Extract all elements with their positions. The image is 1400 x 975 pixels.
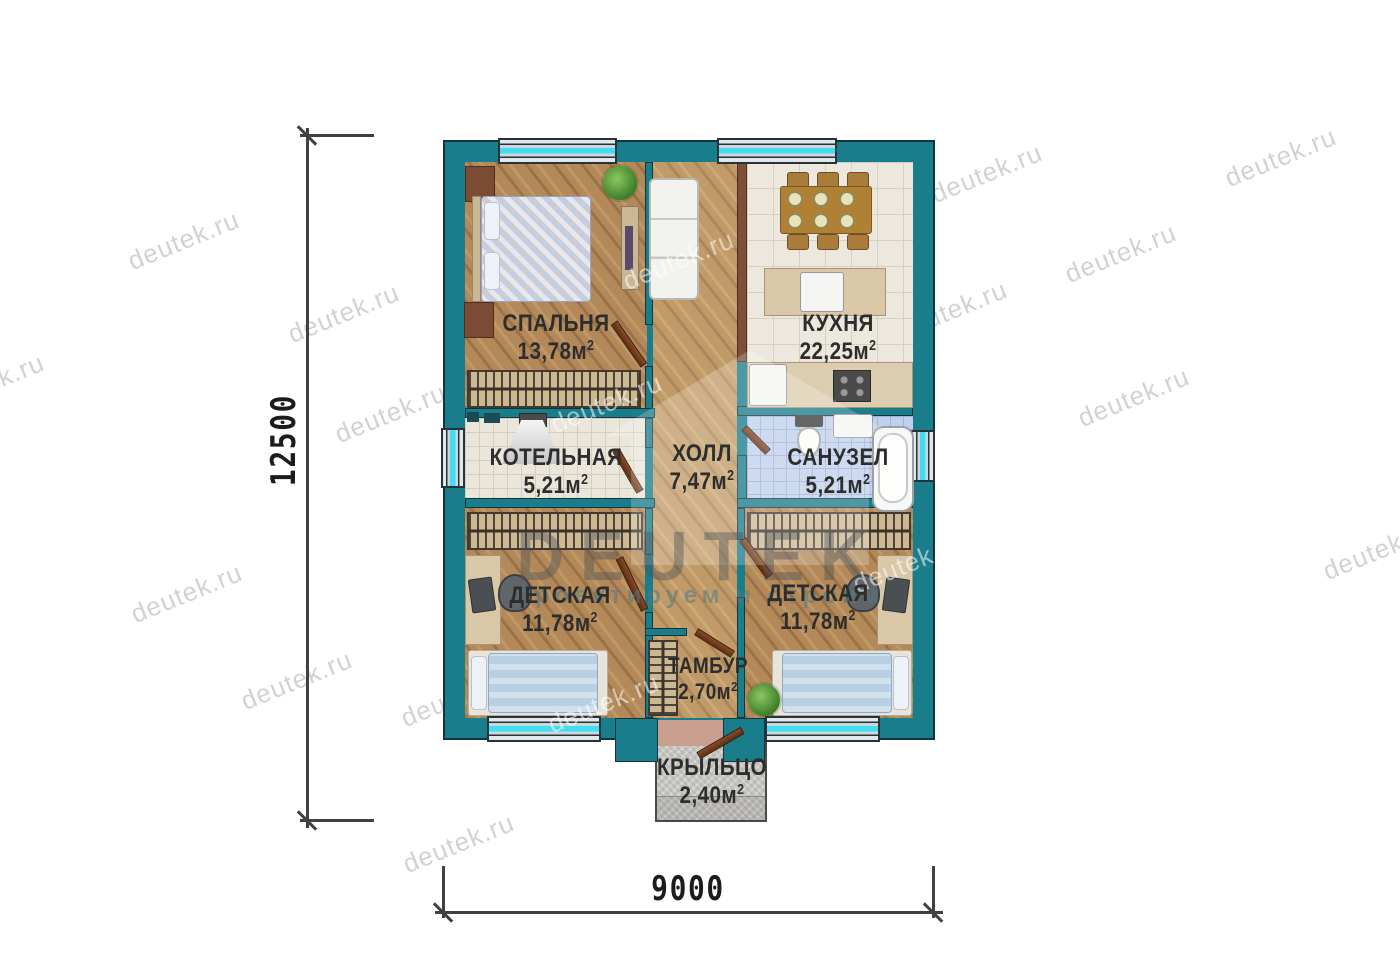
chair [817,234,839,250]
window [717,138,837,164]
watermark-text: deutek.ru [1073,361,1193,434]
pillow [893,656,909,710]
watermark-text: deutek.ru [398,807,518,880]
interior-wall [645,366,653,412]
vertical-dimension-line [306,128,309,828]
dresser-detail [625,226,633,270]
pillow [471,656,487,710]
plate [813,213,829,229]
watermark-text: deutek.ru [283,277,403,350]
blanket [488,653,598,713]
interior-wall [737,597,745,718]
interior-wall [645,628,687,636]
watermark-text: deutek.ru [0,347,49,420]
window [765,716,880,742]
horizontal-dimension-line [435,911,943,914]
watermark-text: deutek.ru [1220,121,1340,194]
plant [748,684,780,716]
wardrobe [467,512,643,550]
monitor [882,576,910,613]
pillow [484,252,500,290]
watermark-text: deutek.ru [926,137,1046,210]
watermark-text: deutek.ru [330,377,450,450]
door-jamb [615,718,658,762]
nightstand [464,302,494,338]
sofa [649,178,699,300]
island-sink [800,272,844,312]
blanket [782,653,892,713]
window [911,430,935,482]
plate [813,191,829,207]
bed-headboard [472,196,481,302]
watermark-text: deutek.ru [123,204,243,277]
width-dimension-label: 9000 [651,869,725,909]
interior-wall [645,418,653,448]
interior-wall [465,498,655,508]
wall-fixture [467,412,479,422]
chair [847,234,869,250]
wall-fixture [484,413,500,423]
watermark-text: deutek.ru [1060,217,1180,290]
kitchen-partition-wall [737,162,747,362]
office-chair [498,574,532,612]
floor-plan-canvas: deutek.ru deutek.ru deutek.ru deutek.ru … [0,0,1400,975]
chair [787,234,809,250]
porch-step [657,796,765,821]
plate [839,213,855,229]
stove [833,370,871,402]
watermark-text: deutek.ru [1318,514,1400,587]
wardrobe [467,370,641,408]
washbasin [833,414,873,438]
watermark-text: deutek.ru [236,644,356,717]
watermark-text: deutek.ru [126,557,246,630]
window [487,716,601,742]
plant [603,166,637,200]
plate [787,213,803,229]
interior-wall [645,508,653,555]
height-dimension-label: 12500 [264,394,304,486]
plate [839,191,855,207]
window [498,138,617,164]
toilet-tank [795,415,823,427]
plate [787,191,803,207]
coat-rack [648,640,678,716]
monitor [468,576,496,613]
pillow [484,202,500,240]
bathtub-inner [878,433,908,503]
window [441,428,465,488]
interior-wall [737,508,745,540]
office-chair [846,574,880,612]
counter-sink [749,364,787,406]
wardrobe [747,512,911,550]
